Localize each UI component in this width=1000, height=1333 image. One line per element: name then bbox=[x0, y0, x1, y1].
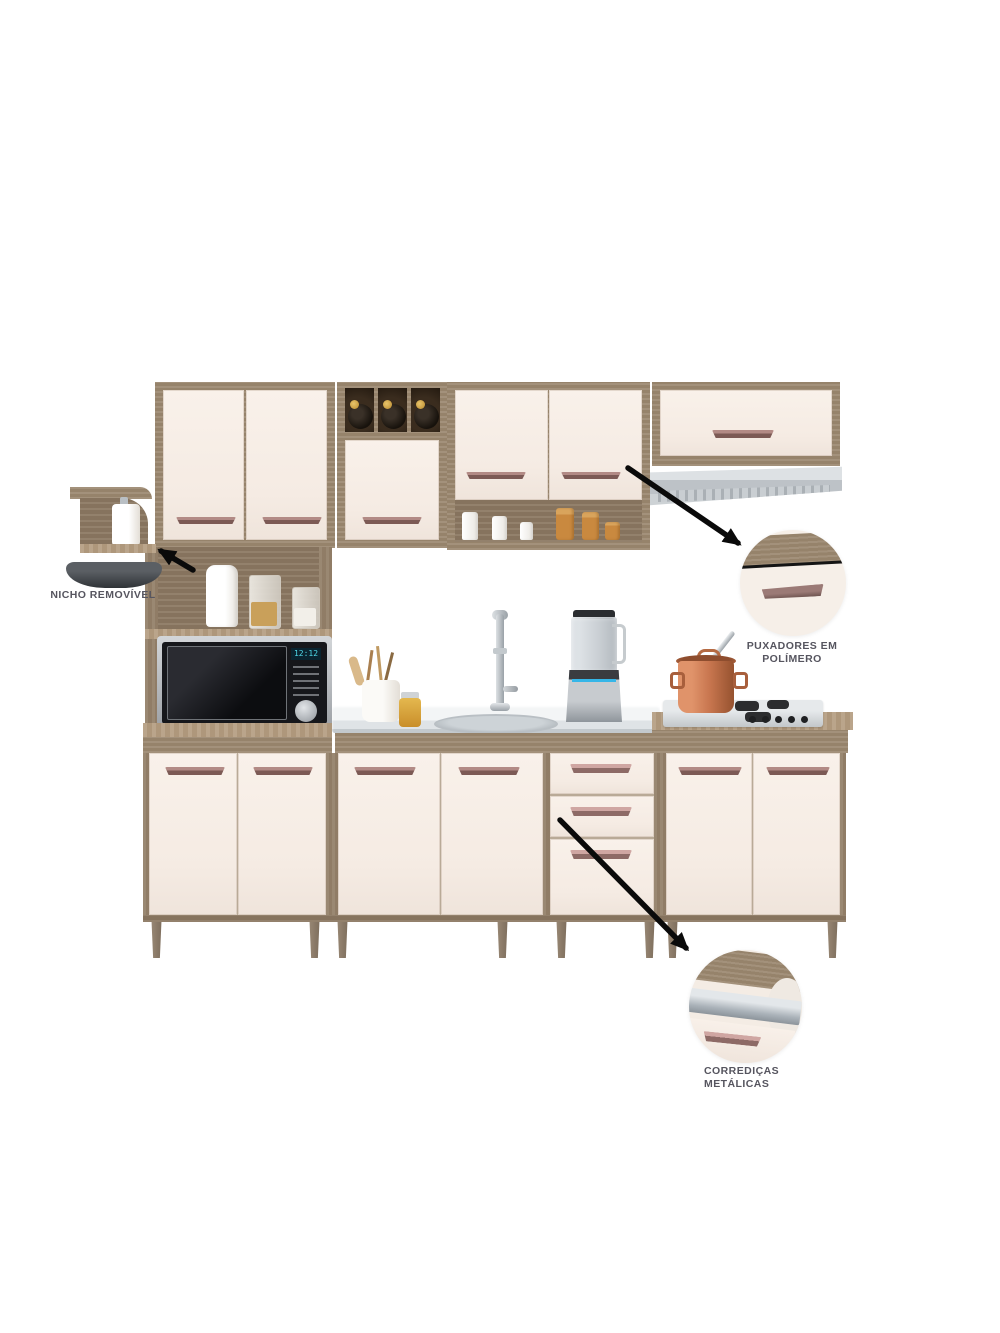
niche-arrow-icon bbox=[161, 551, 193, 570]
handles-arrow-icon bbox=[628, 468, 738, 543]
callout-arrows bbox=[0, 0, 1000, 1333]
slides-arrow-icon bbox=[560, 820, 686, 948]
product-image: 12:12 bbox=[0, 0, 1000, 1333]
